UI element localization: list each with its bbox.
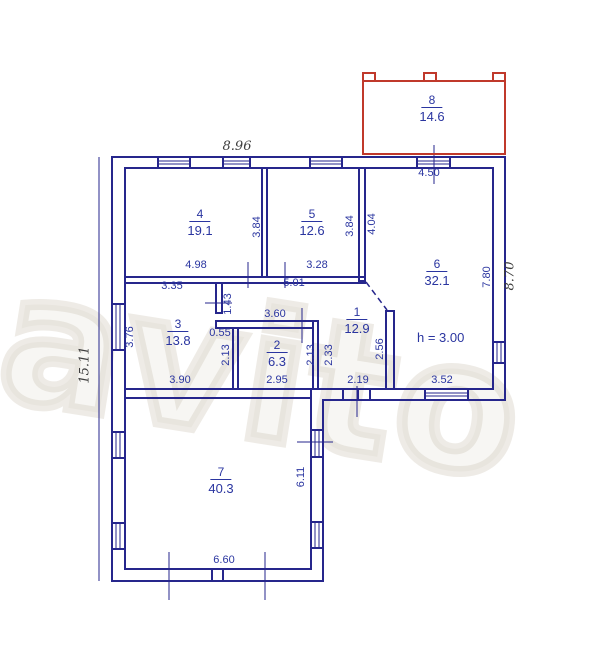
dim-6-11: 6.11	[295, 467, 307, 488]
dim-left-height: 15.11	[78, 346, 93, 383]
room-area: 12.9	[344, 321, 369, 337]
dim-2-33: 2.33	[323, 344, 335, 365]
dim-2-95: 2.95	[266, 374, 287, 386]
room-area: 12.6	[299, 223, 324, 239]
dim-1-43: 1.43	[222, 293, 234, 314]
dim-5-01: 5.01	[283, 277, 304, 289]
dim-4-50: 4.50	[418, 167, 439, 179]
room-label-3: 3 13.8	[165, 318, 190, 349]
dim-4-98: 4.98	[185, 259, 206, 271]
dim-2-13-right: 2.13	[305, 344, 317, 365]
room-number: 3	[168, 318, 189, 332]
room-area: 40.3	[208, 481, 233, 497]
room-number: 4	[190, 208, 211, 222]
room-area: 14.6	[419, 109, 444, 125]
room-label-7: 7 40.3	[208, 466, 233, 497]
dim-3-76: 3.76	[124, 326, 136, 347]
room-number: 8	[422, 94, 443, 108]
dim-6-60: 6.60	[213, 554, 234, 566]
dim-0-55: 0.55	[209, 327, 230, 339]
dim-3-35: 3.35	[161, 280, 182, 292]
dim-3-84-left: 3.84	[251, 216, 263, 237]
room-label-8: 8 14.6	[419, 94, 444, 125]
dim-3-52: 3.52	[431, 374, 452, 386]
dim-3-84-right: 3.84	[344, 215, 356, 236]
room-label-6: 6 32.1	[424, 258, 449, 289]
dim-2-56: 2.56	[374, 338, 386, 359]
room-number: 7	[211, 466, 232, 480]
dim-4-04: 4.04	[366, 213, 378, 234]
room-label-1: 1 12.9	[344, 306, 369, 337]
room-number: 6	[427, 258, 448, 272]
room-area: 32.1	[424, 273, 449, 289]
room-label-5: 5 12.6	[299, 208, 324, 239]
room-number: 2	[267, 339, 288, 353]
dim-2-19: 2.19	[347, 374, 368, 386]
room-number: 5	[302, 208, 323, 222]
dim-2-13-left: 2.13	[220, 344, 232, 365]
room-area: 13.8	[165, 333, 190, 349]
dim-top-width: 8.96	[223, 139, 252, 154]
room-area: 6.3	[268, 354, 286, 370]
room-label-2: 2 6.3	[267, 339, 288, 370]
dim-3-28: 3.28	[306, 259, 327, 271]
dim-3-60: 3.60	[264, 308, 285, 320]
room-label-4: 4 19.1	[187, 208, 212, 239]
dim-7-80: 7.80	[481, 266, 493, 287]
floor-plan: avito	[0, 0, 608, 645]
floor-plan-drawing	[0, 0, 608, 645]
room-number: 1	[347, 306, 368, 320]
ceiling-height-note: h = 3.00	[417, 330, 464, 345]
room-area: 19.1	[187, 223, 212, 239]
dim-3-90: 3.90	[169, 374, 190, 386]
dim-right-height: 8.70	[503, 262, 518, 291]
